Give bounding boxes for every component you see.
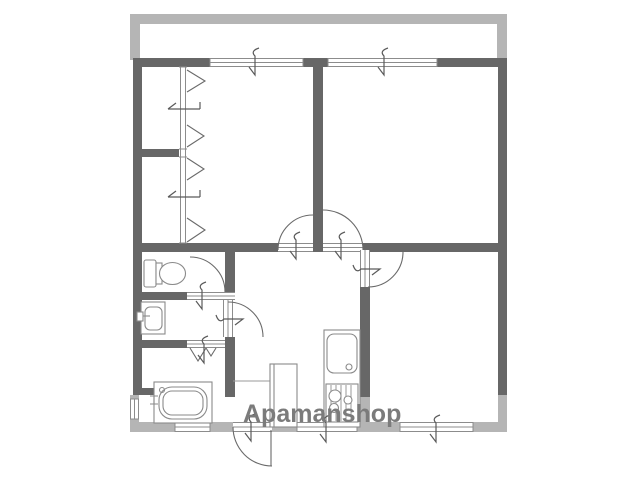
window-bathroom-left <box>130 399 139 419</box>
apamanshop-watermark: Apamanshop <box>243 400 401 429</box>
bathtub <box>150 382 212 423</box>
balcony-walls <box>130 14 507 60</box>
door-hall-to-upper-right-room <box>323 210 363 252</box>
window-top-left <box>210 58 303 67</box>
floor-plan-page: Apamanshop <box>0 0 640 480</box>
window-top-right <box>328 58 437 67</box>
washbasin <box>137 302 165 334</box>
door-bath-folding <box>187 340 225 361</box>
toilet <box>144 260 186 287</box>
